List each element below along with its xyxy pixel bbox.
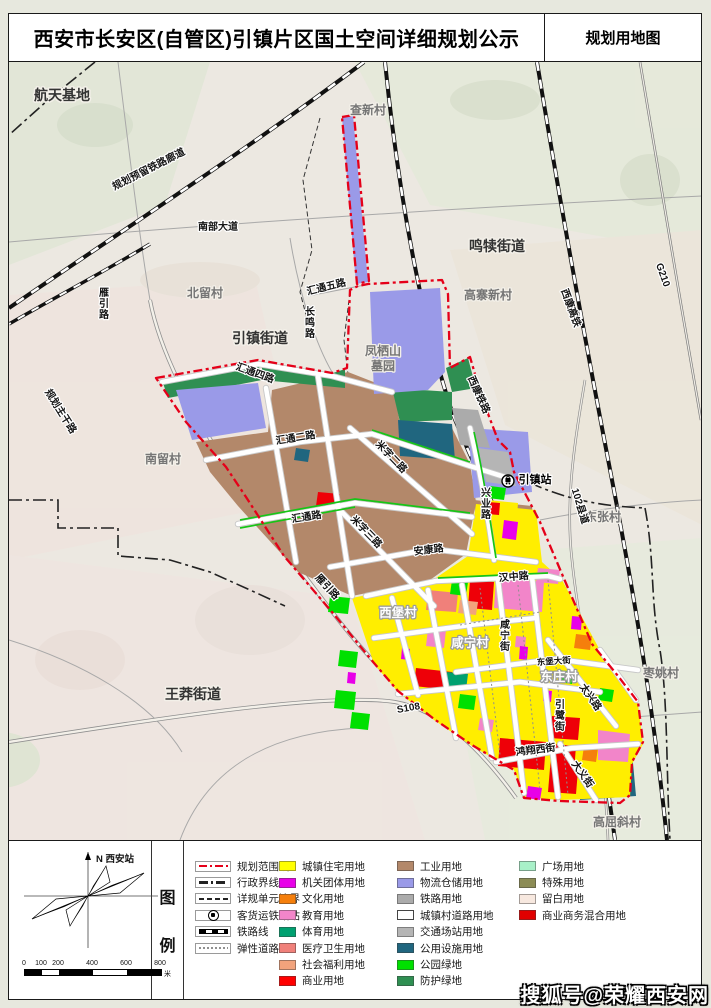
legend-landuse-col3: 广场用地特殊用地留白用地商业商务混合用地 bbox=[519, 858, 626, 924]
legend-landuse-item: 物流仓储用地 bbox=[397, 874, 494, 890]
station-icon bbox=[208, 910, 219, 921]
legend-landuse-item: 公园绿地 bbox=[397, 956, 494, 972]
page-title: 西安市长安区(自管区)引镇片区国土空间详细规划公示 bbox=[9, 14, 544, 61]
legend-label: 防护绿地 bbox=[420, 973, 462, 988]
scale-tick: 400 bbox=[86, 960, 98, 967]
railway-station-icon bbox=[502, 475, 514, 487]
legend-label: 商业商务混合用地 bbox=[542, 908, 626, 923]
admin-line bbox=[199, 881, 228, 883]
legend-landuse-item: 商业商务混合用地 bbox=[519, 907, 626, 923]
landuse-swatch bbox=[519, 878, 536, 888]
map-label: 南留村 bbox=[145, 451, 181, 466]
plan-line bbox=[199, 865, 228, 868]
title-bar: 西安市长安区(自管区)引镇片区国土空间详细规划公示 规划用地图 bbox=[8, 13, 702, 62]
compass-north-label: N 西安站 bbox=[96, 853, 135, 865]
map-label: 雁引路 bbox=[99, 287, 110, 321]
map-label: 墓园 bbox=[370, 358, 395, 373]
landuse-swatch bbox=[279, 861, 296, 871]
scale-bar: 0100200400600800 米 bbox=[24, 960, 174, 976]
legend-label: 广场用地 bbox=[542, 859, 584, 874]
scale-ticks: 0100200400600800 bbox=[24, 960, 174, 969]
scale-unit: 米 bbox=[164, 969, 171, 979]
legend-label: 公用设施用地 bbox=[420, 941, 483, 956]
legend-label: 弹性道路 bbox=[237, 941, 279, 956]
map-type-label: 规划用地图 bbox=[544, 14, 701, 61]
map-label: 查新村 bbox=[349, 102, 386, 117]
legend-landuse-item: 机关团体用地 bbox=[279, 874, 365, 890]
map-label: 长鸣路 bbox=[305, 305, 316, 340]
map-label: 西堡村 bbox=[379, 605, 417, 620]
legend-label: 特殊用地 bbox=[542, 875, 584, 890]
legend-label: 文化用地 bbox=[302, 891, 344, 906]
legend-landuse-item: 社会福利用地 bbox=[279, 956, 365, 972]
legend-landuse-item: 体育用地 bbox=[279, 924, 365, 940]
scale-tick: 0 bbox=[22, 960, 26, 967]
planning-map-page: 航天基地查新村规划预留铁路廊道南部大道鸣犊街道北留村汇通五路高寨新村G210雁引… bbox=[0, 0, 711, 1008]
landuse-swatch bbox=[397, 943, 414, 953]
map-layers: 航天基地查新村规划预留铁路廊道南部大道鸣犊街道北留村汇通五路高寨新村G210雁引… bbox=[0, 62, 702, 840]
map-label: 航天基地 bbox=[34, 87, 90, 103]
compass: N 西安站 bbox=[16, 844, 166, 961]
landuse-swatch bbox=[519, 910, 536, 920]
legend-label: 机关团体用地 bbox=[302, 875, 365, 890]
legend-landuse-item: 医疗卫生用地 bbox=[279, 940, 365, 956]
landuse-swatch bbox=[279, 976, 296, 986]
legend-landuse-item: 城镇住宅用地 bbox=[279, 858, 365, 874]
legend-label: 铁路线 bbox=[237, 924, 269, 939]
legend-label: 医疗卫生用地 bbox=[302, 941, 365, 956]
watermark: 搜狐号@荣耀西安网 bbox=[520, 979, 709, 1008]
scale-tick: 600 bbox=[120, 960, 132, 967]
landuse-swatch bbox=[397, 927, 414, 937]
legend-landuse-item: 广场用地 bbox=[519, 858, 626, 874]
legend-label: 公园绿地 bbox=[420, 957, 462, 972]
legend-label: 留白用地 bbox=[542, 891, 584, 906]
landuse-swatch bbox=[279, 878, 296, 888]
legend-label: 社会福利用地 bbox=[302, 957, 365, 972]
elastic-symbol bbox=[195, 943, 231, 954]
legend-label: 商业用地 bbox=[302, 973, 344, 988]
scale-segments bbox=[24, 969, 162, 976]
map-label: 凤栖山 bbox=[365, 343, 401, 358]
legend-landuse-col1: 城镇住宅用地机关团体用地文化用地教育用地体育用地医疗卫生用地社会福利用地商业用地 bbox=[279, 858, 365, 989]
rail-line bbox=[199, 929, 228, 934]
landuse-swatch bbox=[397, 960, 414, 970]
map-label: 高寨新村 bbox=[464, 287, 512, 302]
map-label: 南部大道 bbox=[198, 220, 238, 233]
legend-label: 交通场站用地 bbox=[420, 924, 483, 939]
legend-label: 城镇住宅用地 bbox=[302, 859, 365, 874]
legend-landuse-item: 交通场站用地 bbox=[397, 924, 494, 940]
map-label: 鸣犊街道 bbox=[469, 238, 525, 254]
landuse-swatch bbox=[397, 861, 414, 871]
legend-landuse-item: 特殊用地 bbox=[519, 874, 626, 890]
scale-tick: 100 bbox=[35, 960, 47, 967]
landuse-swatch bbox=[397, 976, 414, 986]
elastic-line bbox=[199, 947, 228, 949]
legend-landuse-item: 城镇村道路用地 bbox=[397, 907, 494, 923]
station-symbol bbox=[195, 910, 231, 921]
unit-line bbox=[199, 898, 228, 900]
legend-landuse-item: 工业用地 bbox=[397, 858, 494, 874]
legend-landuse-col2: 工业用地物流仓储用地铁路用地城镇村道路用地交通场站用地公用设施用地公园绿地防护绿… bbox=[397, 858, 494, 989]
legend-label: 行政界线 bbox=[237, 875, 279, 890]
rail-symbol bbox=[195, 926, 231, 937]
map-label: 王莽街道 bbox=[165, 686, 221, 702]
north-arrow bbox=[85, 852, 91, 860]
map-label: 兴业路 bbox=[481, 486, 492, 521]
plan-symbol bbox=[195, 861, 231, 872]
landuse-swatch bbox=[279, 894, 296, 904]
legend-landuse-item: 商业用地 bbox=[279, 973, 365, 989]
legend-label: 物流仓储用地 bbox=[420, 875, 483, 890]
map-label: 引镇街道 bbox=[232, 330, 288, 346]
map-label: 咸宁村 bbox=[451, 635, 489, 650]
landuse-swatch bbox=[279, 960, 296, 970]
map-label: 北留村 bbox=[187, 285, 223, 300]
legend-landuse-item: 留白用地 bbox=[519, 891, 626, 907]
legend-landuse-item: 教育用地 bbox=[279, 907, 365, 923]
legend-landuse-item: 防护绿地 bbox=[397, 973, 494, 989]
map-label: 引镇站 bbox=[519, 472, 552, 486]
map-label: 东庄村 bbox=[540, 669, 578, 684]
map-label: 引鹭街 bbox=[554, 698, 566, 733]
map-label: 咸宁街 bbox=[499, 618, 510, 653]
admin-symbol bbox=[195, 877, 231, 888]
unit-symbol bbox=[195, 893, 231, 904]
landuse-swatch bbox=[519, 861, 536, 871]
landuse-swatch bbox=[397, 910, 414, 920]
landuse-swatch bbox=[397, 894, 414, 904]
landuse-swatch bbox=[519, 894, 536, 904]
legend-label: 教育用地 bbox=[302, 908, 344, 923]
scale-tick: 800 bbox=[154, 960, 166, 967]
legend-label: 工业用地 bbox=[420, 859, 462, 874]
landuse-swatch bbox=[279, 943, 296, 953]
map-label: 枣姚村 bbox=[642, 665, 679, 680]
legend-label: 体育用地 bbox=[302, 924, 344, 939]
landuse-swatch bbox=[279, 910, 296, 920]
legend-landuse-item: 公用设施用地 bbox=[397, 940, 494, 956]
legend-landuse-item: 铁路用地 bbox=[397, 891, 494, 907]
legend-label: 铁路用地 bbox=[420, 891, 462, 906]
landuse-swatch bbox=[279, 927, 296, 937]
map-label: 高屈斜村 bbox=[593, 814, 641, 829]
legend-label: 城镇村道路用地 bbox=[420, 908, 494, 923]
scale-tick: 200 bbox=[52, 960, 64, 967]
landuse-swatch bbox=[397, 878, 414, 888]
legend-landuse-item: 文化用地 bbox=[279, 891, 365, 907]
